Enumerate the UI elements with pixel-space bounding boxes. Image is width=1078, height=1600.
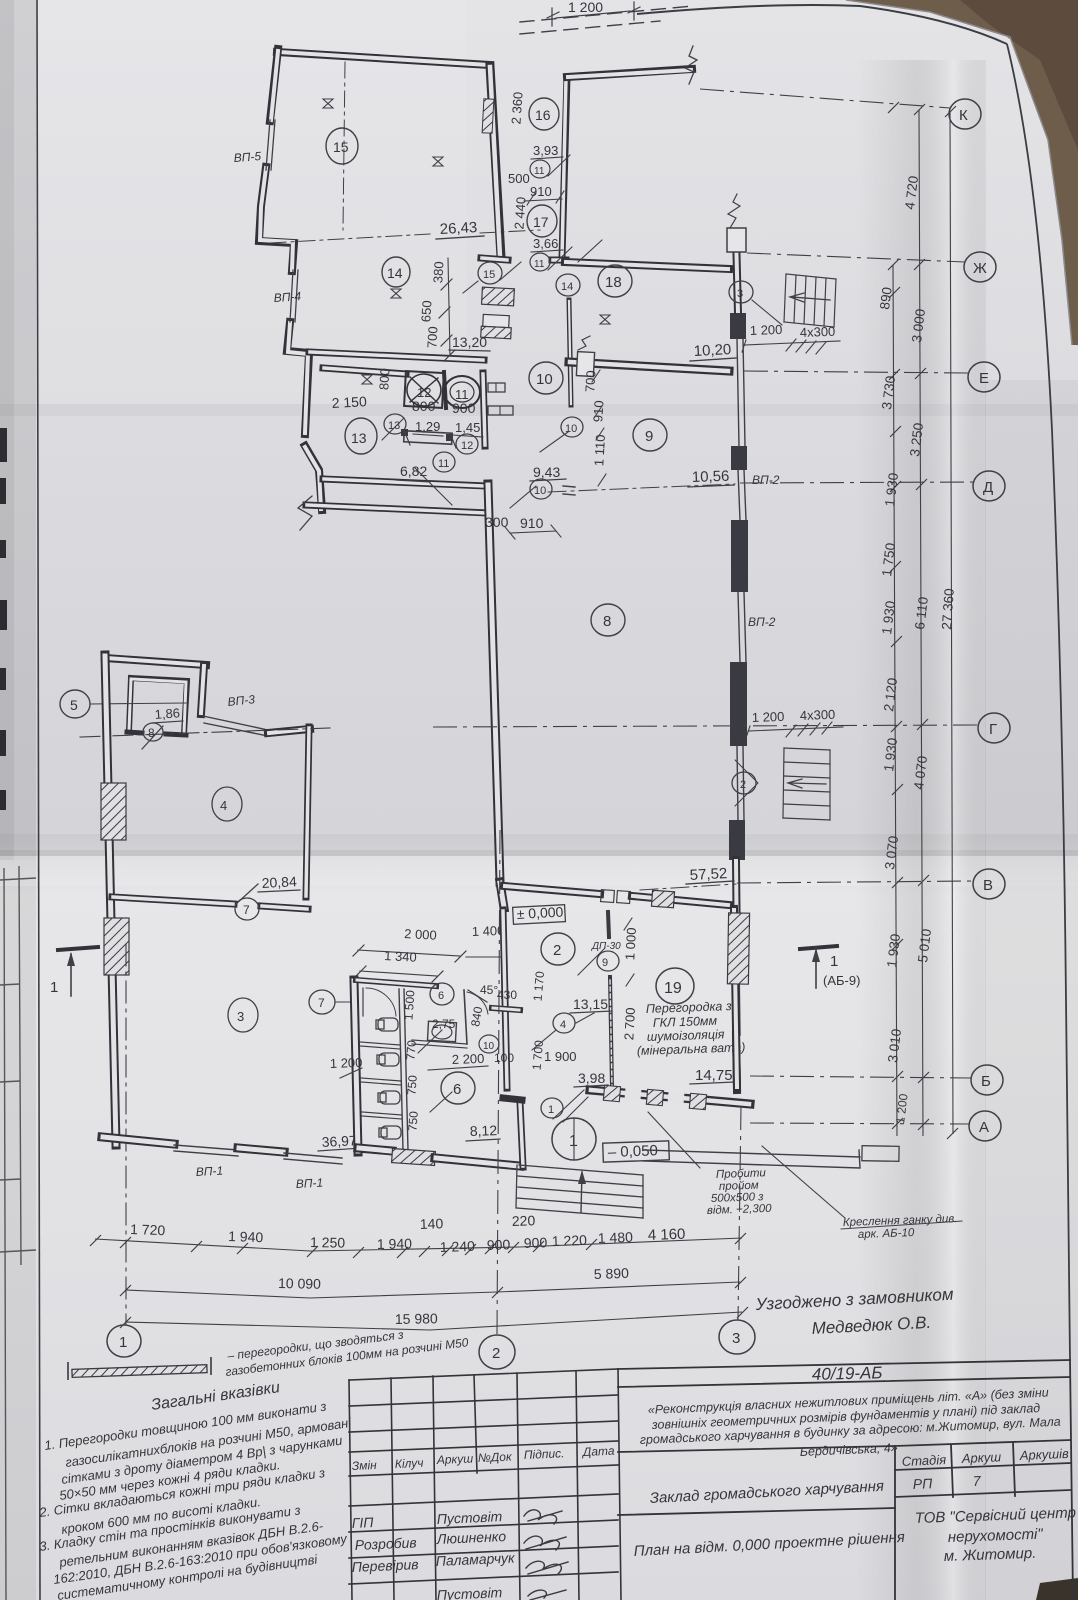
svg-text:Стадія: Стадія	[901, 1452, 946, 1469]
svg-text:3: 3	[737, 288, 743, 300]
svg-text:1,45: 1,45	[455, 420, 480, 435]
svg-text:900: 900	[452, 400, 476, 416]
svg-text:770: 770	[403, 1039, 418, 1060]
svg-text:910: 910	[520, 515, 544, 531]
svg-text:ВП-3: ВП-3	[227, 692, 256, 709]
svg-text:890: 890	[877, 286, 895, 310]
svg-text:900: 900	[524, 1234, 548, 1251]
svg-text:17: 17	[533, 214, 549, 230]
svg-text:ВП-2: ВП-2	[752, 473, 780, 487]
svg-text:3,93: 3,93	[533, 143, 558, 158]
svg-text:2 700: 2 700	[621, 1007, 638, 1040]
svg-text:В: В	[983, 877, 993, 894]
svg-text:15: 15	[483, 269, 495, 281]
svg-text:К: К	[959, 107, 968, 124]
svg-text:11: 11	[438, 458, 449, 470]
svg-text:Аркуш: Аркуш	[960, 1449, 1001, 1466]
svg-text:ГІП: ГІП	[351, 1514, 374, 1531]
svg-text:Аркуш: Аркуш	[436, 1451, 474, 1467]
svg-text:ВП-1: ВП-1	[195, 1164, 223, 1179]
svg-text:16: 16	[535, 107, 551, 123]
svg-text:140: 140	[420, 1215, 444, 1232]
svg-text:13: 13	[351, 430, 367, 446]
svg-text:Б: Б	[981, 1073, 991, 1090]
svg-text:4х300: 4х300	[800, 707, 836, 723]
svg-text:11: 11	[534, 166, 545, 177]
svg-text:1 200: 1 200	[750, 322, 783, 338]
svg-text:2: 2	[553, 942, 561, 959]
svg-text:6: 6	[453, 1081, 461, 1098]
svg-text:1 200: 1 200	[752, 709, 785, 725]
svg-text:1: 1	[119, 1334, 127, 1351]
svg-text:4 160: 4 160	[648, 1226, 686, 1244]
svg-text:1 220: 1 220	[552, 1232, 588, 1249]
svg-text:1 200: 1 200	[568, 0, 603, 15]
svg-text:11: 11	[534, 259, 545, 270]
svg-text:1 110: 1 110	[591, 434, 608, 466]
svg-text:Кілуч: Кілуч	[395, 1456, 424, 1471]
svg-text:1,86: 1,86	[154, 705, 180, 722]
svg-text:ДП-30: ДП-30	[591, 941, 621, 952]
svg-text:750: 750	[405, 1110, 420, 1131]
svg-text:40/19-АБ: 40/19-АБ	[812, 1363, 883, 1384]
svg-text:1 500: 1 500	[401, 989, 417, 1020]
svg-text:45°: 45°	[480, 983, 498, 997]
svg-text:800: 800	[412, 398, 436, 414]
svg-text:1: 1	[548, 1104, 554, 1116]
svg-text:5: 5	[70, 697, 78, 713]
svg-text:ВП-4: ВП-4	[273, 289, 302, 305]
svg-text:20,84: 20,84	[261, 873, 297, 891]
svg-text:10: 10	[536, 371, 553, 388]
svg-text:2,75: 2,75	[432, 1017, 456, 1031]
svg-text:Г: Г	[989, 721, 997, 738]
svg-text:26,43: 26,43	[439, 219, 477, 238]
svg-text:Пустовіт: Пустовіт	[436, 1584, 502, 1600]
svg-text:10,20: 10,20	[693, 341, 731, 360]
svg-text:7: 7	[243, 903, 250, 917]
svg-text:Люшненко: Люшненко	[435, 1528, 506, 1547]
svg-text:4: 4	[560, 1019, 566, 1031]
svg-text:РП: РП	[912, 1475, 933, 1492]
svg-text:– 0,050: – 0,050	[608, 1142, 659, 1161]
svg-text:19: 19	[664, 980, 682, 997]
svg-text:10 090: 10 090	[278, 1275, 321, 1292]
svg-text:910: 910	[530, 184, 552, 199]
svg-text:3: 3	[732, 1330, 740, 1347]
svg-text:Е: Е	[979, 370, 989, 387]
svg-text:ВП-1: ВП-1	[295, 1176, 323, 1191]
svg-text:1 480: 1 480	[598, 1229, 634, 1246]
svg-text:430: 430	[497, 988, 517, 1002]
svg-text:3: 3	[237, 1009, 244, 1024]
svg-text:2 150: 2 150	[331, 393, 367, 411]
svg-text:900: 900	[487, 1236, 511, 1253]
svg-text:10: 10	[483, 1041, 495, 1052]
svg-text:8: 8	[603, 613, 611, 630]
svg-text:Д: Д	[983, 479, 993, 496]
svg-text:1 200: 1 200	[330, 1055, 363, 1071]
svg-text:700: 700	[582, 370, 598, 392]
svg-text:650: 650	[418, 300, 434, 322]
svg-text:1: 1	[830, 953, 838, 970]
svg-text:27 360: 27 360	[939, 588, 957, 630]
svg-text:2 000: 2 000	[404, 926, 437, 943]
svg-text:36,97: 36,97	[321, 1132, 357, 1150]
svg-text:12: 12	[461, 440, 473, 452]
svg-text:14: 14	[561, 281, 573, 293]
svg-text:220: 220	[512, 1212, 536, 1229]
svg-text:2: 2	[492, 1345, 500, 1362]
svg-text:± 0,000: ± 0,000	[516, 904, 564, 922]
svg-text:ВП-5: ВП-5	[233, 149, 262, 165]
svg-text:А: А	[979, 1119, 989, 1136]
svg-text:3,98: 3,98	[578, 1070, 605, 1086]
svg-text:(АБ-9): (АБ-9)	[823, 973, 860, 988]
svg-text:2 360: 2 360	[508, 91, 525, 125]
svg-text:1 900: 1 900	[544, 1049, 577, 1064]
svg-text:1: 1	[50, 979, 58, 996]
svg-text:нерухомості": нерухомості"	[948, 1526, 1044, 1546]
svg-text:2 440: 2 440	[511, 196, 528, 230]
svg-text:Пробити: Пробити	[716, 1167, 767, 1181]
svg-text:750: 750	[404, 1074, 419, 1095]
svg-text:Перевірив: Перевірив	[351, 1556, 418, 1575]
svg-text:Змін: Змін	[352, 1458, 378, 1473]
svg-text:2 200: 2 200	[452, 1051, 485, 1067]
svg-text:Аркушів: Аркушів	[1018, 1446, 1069, 1463]
svg-text:14,75: 14,75	[695, 1067, 733, 1084]
svg-text:1 000: 1 000	[622, 927, 639, 960]
svg-text:4: 4	[220, 798, 227, 813]
svg-text:8,12: 8,12	[470, 1122, 498, 1139]
svg-text:7: 7	[318, 996, 325, 1010]
svg-text:9: 9	[602, 957, 608, 969]
svg-text:1 940: 1 940	[377, 1235, 413, 1252]
svg-text:Дата: Дата	[581, 1444, 616, 1459]
svg-text:м. Житомир.: м. Житомир.	[944, 1545, 1037, 1565]
svg-text:1 240: 1 240	[440, 1238, 476, 1255]
svg-text:9,43: 9,43	[533, 464, 560, 480]
svg-text:арк. АБ-10: арк. АБ-10	[858, 1227, 915, 1241]
svg-text:1 340: 1 340	[384, 948, 417, 965]
svg-text:4х300: 4х300	[800, 324, 836, 340]
svg-text:№Док: №Док	[478, 1449, 514, 1465]
svg-text:500: 500	[508, 171, 530, 186]
svg-text:ВП-2: ВП-2	[748, 615, 776, 629]
svg-text:13: 13	[388, 420, 400, 432]
svg-text:2: 2	[740, 779, 746, 791]
svg-text:3,66: 3,66	[533, 236, 558, 251]
svg-text:1 720: 1 720	[130, 1221, 166, 1238]
svg-text:Ж: Ж	[973, 260, 987, 277]
svg-text:6: 6	[438, 990, 444, 1002]
svg-text:13,15: 13,15	[573, 996, 608, 1012]
svg-text:15: 15	[333, 139, 349, 155]
svg-text:13,20: 13,20	[452, 334, 487, 350]
svg-text:Пустовіт: Пустовіт	[436, 1508, 502, 1527]
svg-text:15 980: 15 980	[395, 1310, 438, 1327]
svg-text:800: 800	[376, 368, 392, 390]
svg-text:1 940: 1 940	[228, 1228, 264, 1245]
svg-text:14: 14	[387, 265, 403, 281]
svg-text:1 250: 1 250	[310, 1234, 346, 1251]
svg-text:Розробив: Розробив	[354, 1534, 416, 1553]
svg-text:380: 380	[430, 261, 446, 283]
svg-text:10,56: 10,56	[692, 468, 730, 486]
svg-text:18: 18	[605, 274, 622, 291]
svg-text:Підпис.: Підпис.	[524, 1446, 565, 1462]
svg-text:5 890: 5 890	[594, 1265, 630, 1282]
svg-text:9: 9	[645, 428, 653, 445]
svg-text:1,29: 1,29	[415, 419, 440, 434]
svg-text:1 170: 1 170	[531, 970, 548, 1001]
svg-text:100: 100	[494, 1051, 514, 1065]
svg-text:700: 700	[424, 326, 440, 348]
